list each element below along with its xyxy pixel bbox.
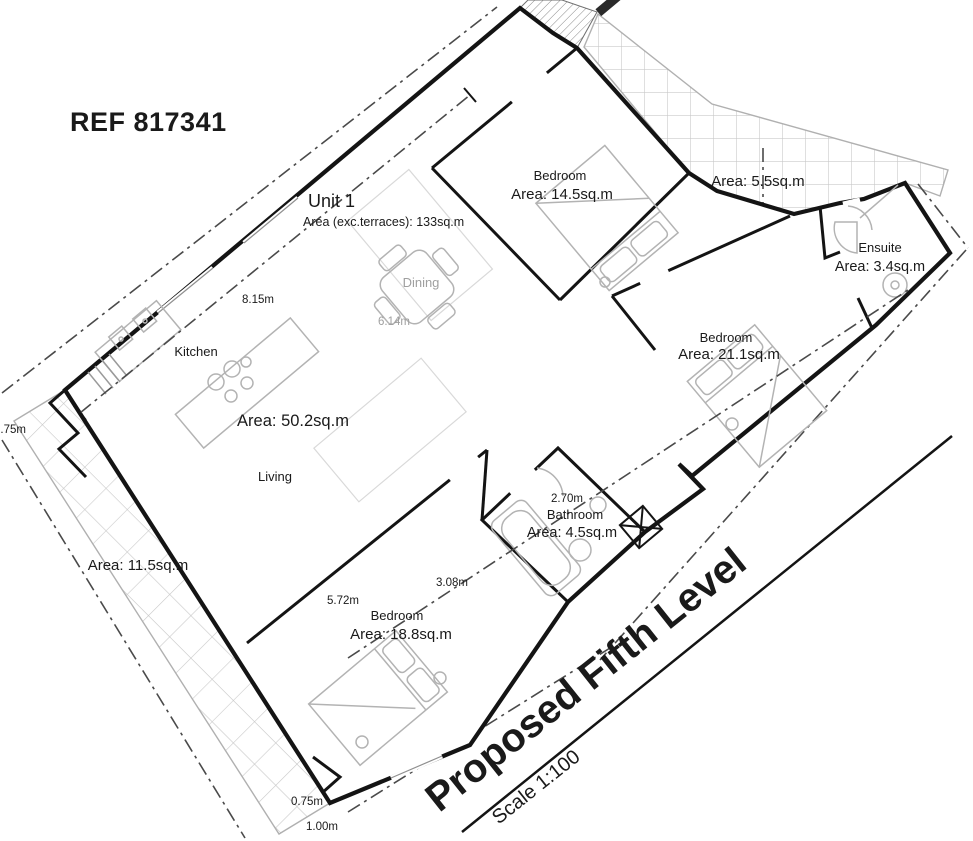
bedroom-right-area: Area: 21.1sq.m xyxy=(678,346,780,363)
bedroom-bottom-area: Area: 18.8sq.m xyxy=(350,626,452,643)
dim-bathroom-span: 2.70m xyxy=(551,493,583,505)
unit-name: Unit 1 xyxy=(308,191,355,211)
ensuite-area: Area: 3.4sq.m xyxy=(835,259,925,275)
dim-left-edge: 0.75m xyxy=(0,424,26,436)
ref-number: REF 817341 xyxy=(70,107,227,137)
bedroom-top-label: Bedroom xyxy=(534,168,587,183)
terrace-top-area-label: Area: 5.5sq.m xyxy=(711,173,804,190)
dim-bedroom-bottom-side: 3.08m xyxy=(436,577,468,589)
dim-bedroom-bottom-wall: 5.72m xyxy=(327,595,359,607)
bathroom-label: Bathroom xyxy=(547,507,603,522)
dining-label: Dining xyxy=(403,275,440,290)
living-area: Area: 50.2sq.m xyxy=(237,412,349,430)
floorplan-svg: REF 817341 Unit 1 Area (exc.terraces): 1… xyxy=(0,0,973,841)
column-top xyxy=(595,0,621,16)
terrace-side-area-label: Area: 11.5sq.m xyxy=(88,557,189,574)
bedroom-right-label: Bedroom xyxy=(700,330,753,345)
dim-kitchen-wall: 8.15m xyxy=(242,294,274,306)
bedroom-top-area: Area: 14.5sq.m xyxy=(511,186,613,203)
living-label: Living xyxy=(258,469,292,484)
dim-bottom-corner-b: 1.00m xyxy=(306,821,338,833)
dim-dining-span: 6.14m xyxy=(378,316,410,328)
bathroom-area: Area: 4.5sq.m xyxy=(527,525,617,541)
kitchen-label: Kitchen xyxy=(174,344,217,359)
bedroom-bottom-label: Bedroom xyxy=(371,608,424,623)
ensuite-label: Ensuite xyxy=(858,240,901,255)
dim-bottom-corner-a: 0.75m xyxy=(291,796,323,808)
floorplan-drawing: REF 817341 Unit 1 Area (exc.terraces): 1… xyxy=(0,0,973,841)
unit-area-note: Area (exc.terraces): 133sq.m xyxy=(303,215,464,229)
